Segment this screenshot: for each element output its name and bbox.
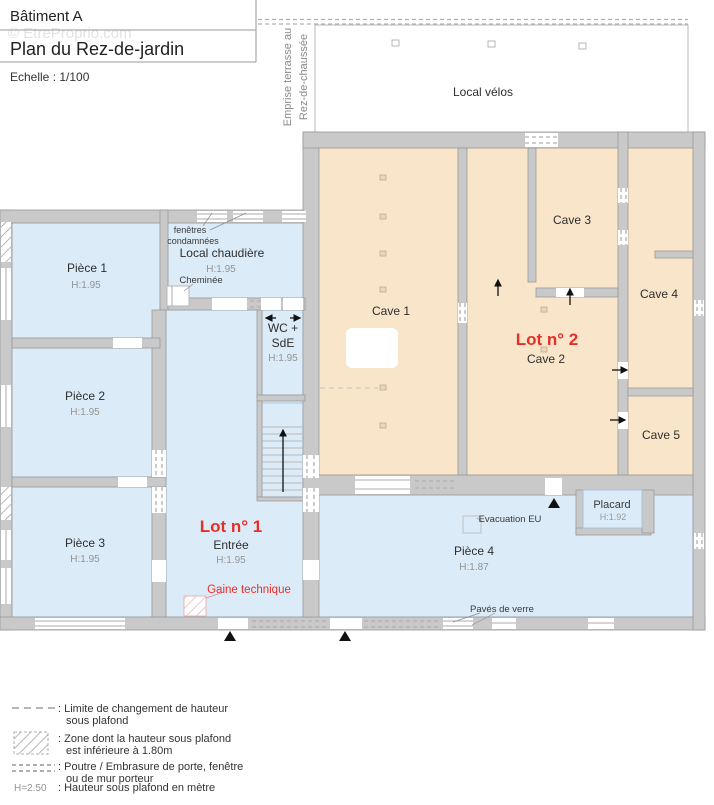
room-label-cave-4: Cave 4 [640, 287, 678, 301]
room-local-velos [315, 25, 688, 135]
room-label-placard: Placard [593, 499, 630, 511]
room-label-cave-1: Cave 1 [372, 304, 410, 318]
legend-item-3-line-1: : Poutre / Embrasure de porte, fenêtre [58, 761, 243, 773]
plan-scale: Echelle : 1/100 [10, 70, 90, 84]
terrace-area: Local vélos Emprise terrasse au Rez-de-c… [258, 20, 688, 136]
door-opening [545, 478, 562, 495]
post-marker [380, 214, 386, 219]
room-label-wc-sde-1: WC + [268, 321, 298, 335]
legend: : Limite de changement de hauteur sous p… [12, 703, 243, 794]
wall-beam-opening [303, 455, 319, 478]
room-label-cave-3: Cave 3 [553, 213, 591, 227]
title-block: Bâtiment A Plan du Rez-de-jardin Echelle… [0, 0, 256, 84]
note-evacuation-eu: Evacuation EU [479, 514, 542, 525]
post-marker [380, 423, 386, 428]
wall-beam-opening [152, 487, 166, 513]
legend-item-2-line-1: : Zone dont la hauteur sous plafond [58, 733, 231, 745]
room-height-piece-2: H:1.95 [70, 407, 100, 418]
post-marker [541, 307, 547, 312]
door-opening [330, 618, 362, 629]
wall-wc-bottom [257, 395, 305, 401]
wall-exterior-top-left-wing [0, 210, 312, 223]
building-title: Bâtiment A [10, 8, 83, 25]
terrace-note-line1: Emprise terrasse au [282, 28, 294, 126]
room-height-piece-1: H:1.95 [71, 280, 101, 291]
legend-item-1-line-1: : Limite de changement de hauteur [58, 703, 228, 715]
room-label-piece-2: Pièce 2 [65, 389, 105, 403]
post-marker [579, 43, 586, 49]
room-label-cave-2: Cave 2 [527, 352, 565, 366]
post-marker [380, 251, 386, 256]
room-label-local-velos: Local vélos [453, 85, 513, 99]
chimney [167, 286, 189, 306]
door-opening [355, 476, 410, 494]
wall-cave4-cave5-divider [628, 388, 693, 396]
entrance-triangle [224, 631, 236, 641]
room-label-piece-4: Pièce 4 [454, 544, 494, 558]
legend-item-1-line-2: sous plafond [66, 715, 128, 727]
room-label-cave-5: Cave 5 [642, 428, 680, 442]
room-height-local-chaudiere: H:1.95 [206, 264, 236, 275]
entrance-triangle [339, 631, 351, 641]
wall-placard-bottom [576, 528, 651, 535]
legend-height-sample: H=2.50 [14, 783, 47, 794]
post-marker [380, 287, 386, 292]
legend-item-4-line-1: : Hauteur sous plafond en mètre [58, 782, 215, 794]
blank-patch [346, 328, 398, 368]
floor-plan: © EtreProprio.com Bâtiment A Plan du Rez… [0, 0, 714, 800]
window [197, 211, 227, 222]
hatched-wall-zone [1, 487, 11, 520]
door-leaf [283, 298, 303, 310]
room-label-wc-sde-2: SdE [272, 336, 295, 350]
window [233, 211, 263, 222]
door-opening [212, 298, 247, 310]
legend-item-2-line-2: est inférieure à 1.80m [66, 745, 172, 757]
wall-spine [303, 132, 319, 617]
door-opening [218, 618, 248, 629]
room-label-piece-3: Pièce 3 [65, 536, 105, 550]
room-label-piece-1: Pièce 1 [67, 261, 107, 275]
room-label-local-chaudiere: Local chaudière [180, 246, 265, 260]
room-height-wc-sde: H:1.95 [268, 353, 298, 364]
door-opening [303, 560, 319, 580]
note-fenetres-condamnees-2: condamnées [167, 236, 219, 246]
wall-cave3-left [528, 148, 536, 282]
wall-cave4-stub [655, 251, 693, 258]
note-paves-de-verre: Pavés de verre [470, 604, 534, 615]
wall-caves-top [303, 132, 705, 148]
lot-2-label: Lot n° 2 [516, 330, 579, 349]
hatched-wall-zone [1, 222, 11, 262]
gaine-technique-zone [184, 596, 206, 616]
lot-1-label: Lot n° 1 [200, 517, 263, 536]
terrace-note-line2: Rez-de-chaussée [298, 34, 310, 120]
room-height-entree: H:1.95 [216, 555, 246, 566]
plan-title: Plan du Rez-de-jardin [10, 39, 184, 59]
post-marker [392, 40, 399, 46]
wall-beam-opening [152, 450, 166, 477]
door-leaf [261, 298, 281, 310]
door-opening [118, 477, 147, 487]
wall-stair-left [257, 401, 262, 497]
window [35, 618, 125, 629]
note-gaine-technique: Gaine technique [207, 584, 291, 596]
glass-paver-window [443, 618, 473, 629]
post-marker [380, 385, 386, 390]
door-opening [152, 560, 166, 582]
post-marker [488, 41, 495, 47]
wall-stair-bottom [257, 497, 305, 501]
room-piece-3 [12, 487, 152, 617]
post-marker [380, 175, 386, 180]
room-height-piece-4: H:1.87 [459, 562, 489, 573]
wall-beam-opening [303, 488, 319, 512]
room-height-placard: H:1.92 [600, 512, 627, 522]
note-fenetres-condamnees-1: fenêtres [174, 225, 207, 235]
room-height-piece-3: H:1.95 [70, 554, 100, 565]
door-opening [113, 338, 142, 348]
door-opening [525, 133, 558, 147]
wall-exterior-right [693, 132, 705, 630]
wall-wc-left [257, 310, 262, 398]
window [282, 211, 306, 222]
wall-placard-right [642, 490, 654, 533]
note-cheminee: Cheminée [179, 275, 222, 286]
room-label-entree: Entrée [213, 538, 249, 552]
legend-hatched-zone-sample [14, 732, 48, 754]
